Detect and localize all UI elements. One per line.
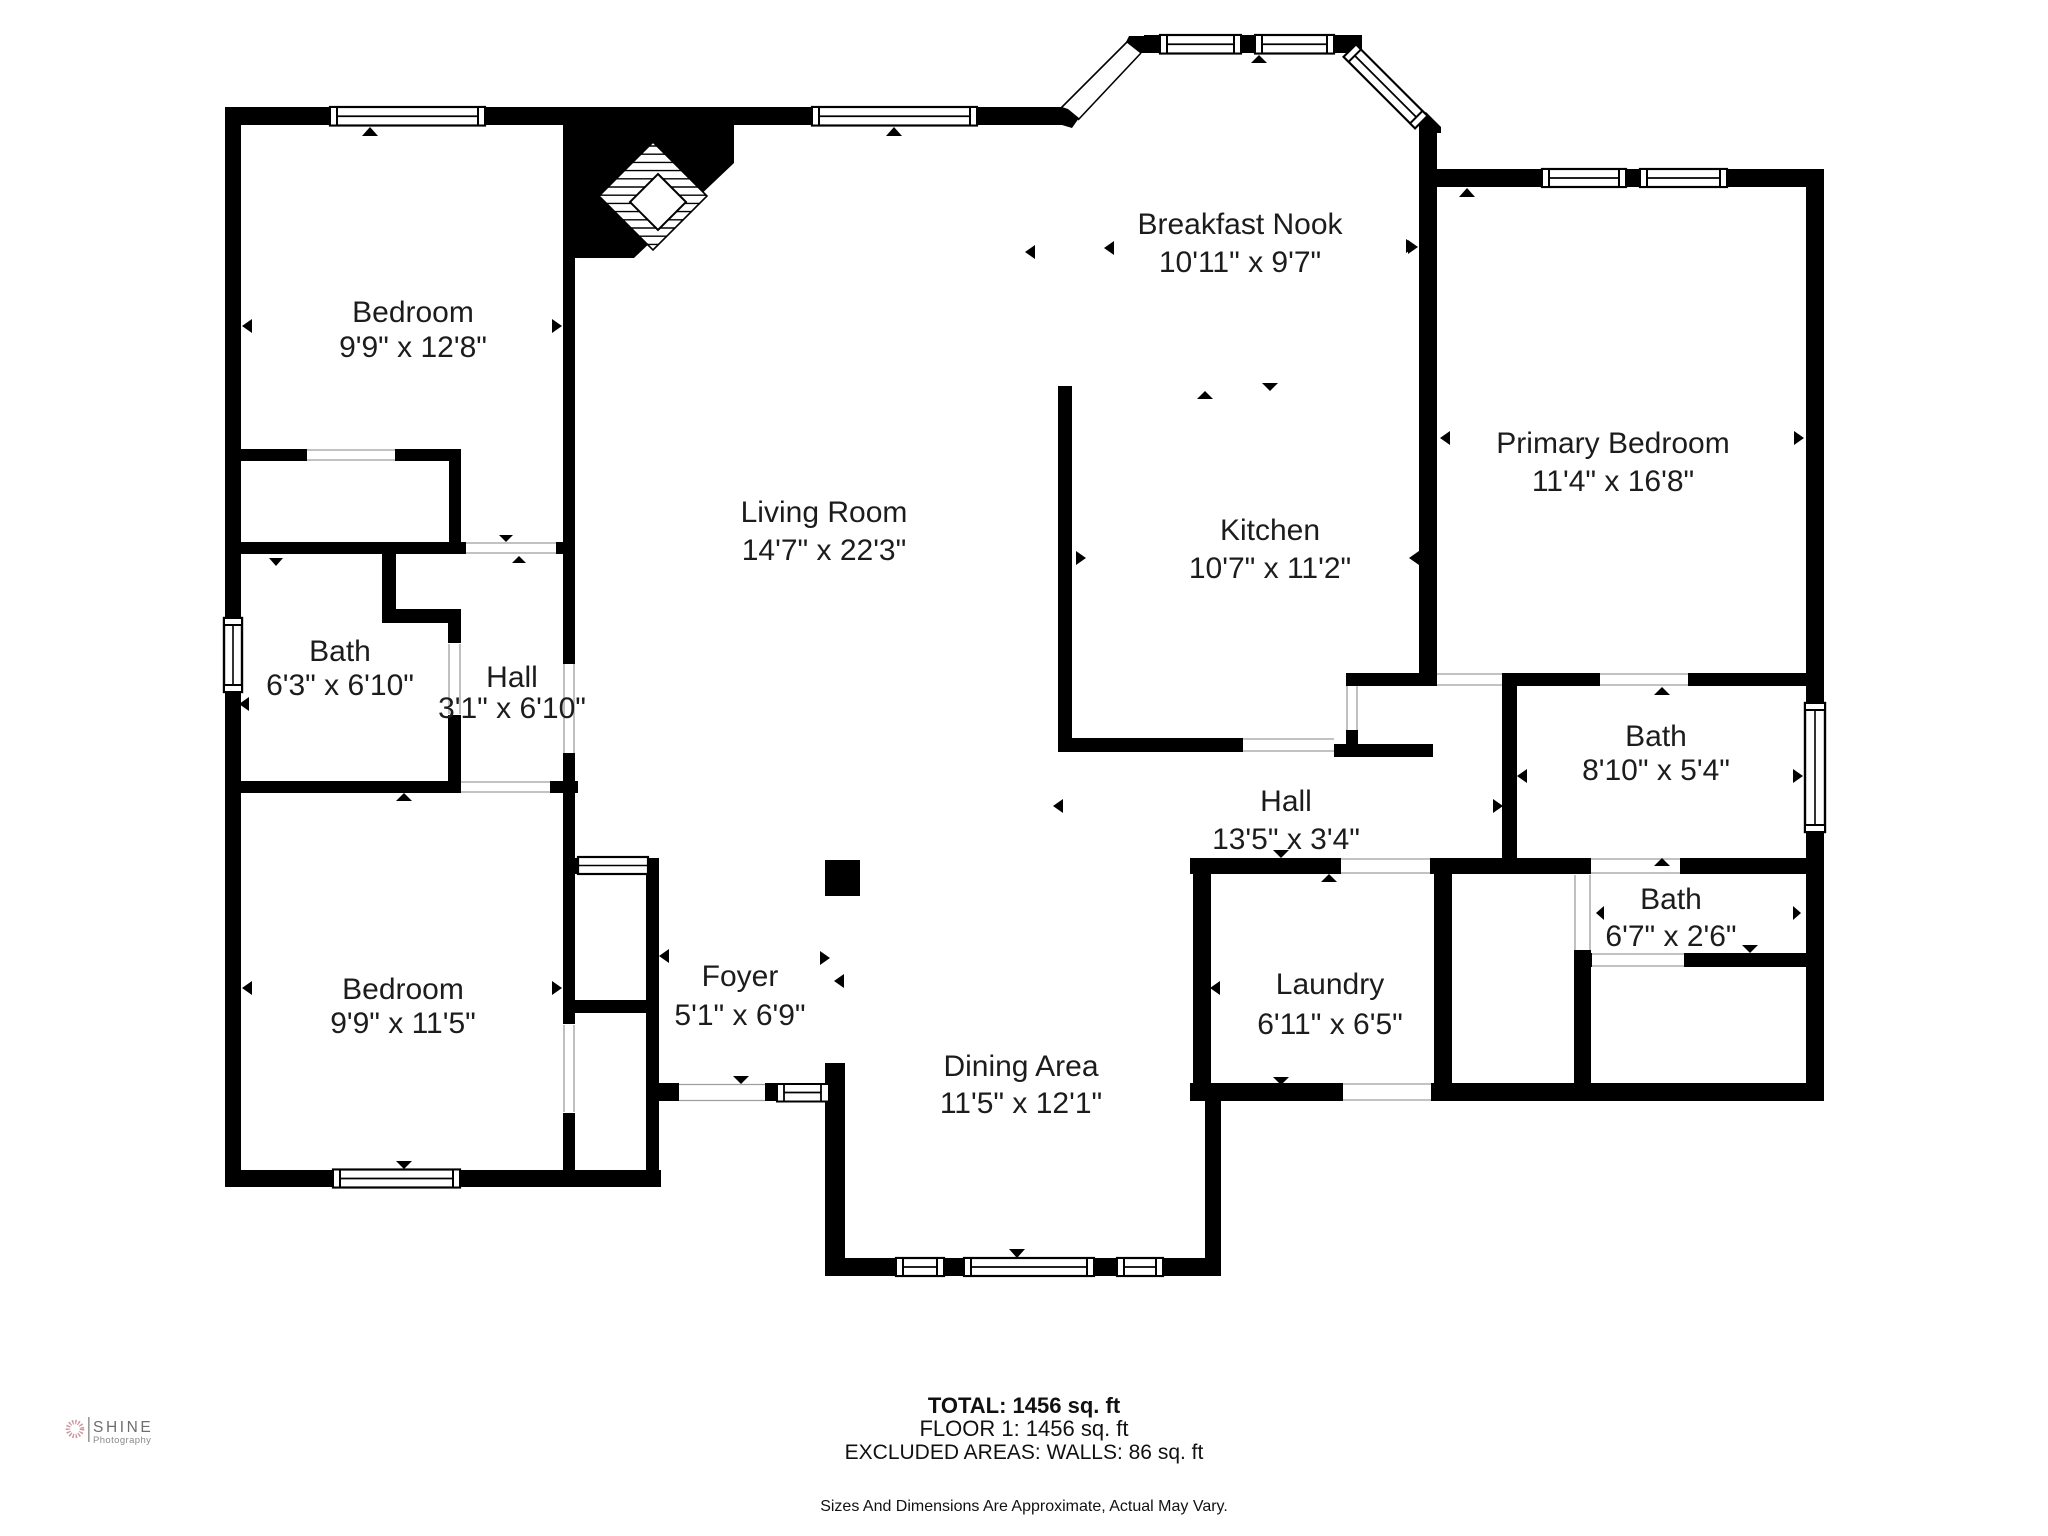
svg-text:TOTAL: 1456 sq. ft: TOTAL: 1456 sq. ft	[928, 1393, 1121, 1418]
svg-text:FLOOR 1: 1456 sq. ft: FLOOR 1: 1456 sq. ft	[919, 1416, 1128, 1441]
svg-text:SHINE: SHINE	[93, 1419, 153, 1436]
svg-text:Bedroom: Bedroom	[342, 973, 464, 1006]
svg-text:11'4" x 16'8": 11'4" x 16'8"	[1532, 465, 1694, 498]
svg-text:Hall: Hall	[486, 661, 538, 694]
svg-text:14'7" x 22'3": 14'7" x 22'3"	[742, 534, 907, 567]
svg-text:6'7" x 2'6": 6'7" x 2'6"	[1605, 920, 1736, 953]
svg-text:Bedroom: Bedroom	[352, 296, 474, 329]
svg-text:9'9" x 12'8": 9'9" x 12'8"	[339, 331, 487, 364]
svg-text:3'1" x 6'10": 3'1" x 6'10"	[438, 692, 586, 725]
svg-text:13'5" x 3'4": 13'5" x 3'4"	[1212, 823, 1360, 856]
svg-text:Foyer: Foyer	[702, 960, 779, 993]
svg-text:Primary Bedroom: Primary Bedroom	[1496, 427, 1729, 460]
svg-text:Laundry: Laundry	[1276, 968, 1384, 1001]
svg-text:9'9" x 11'5": 9'9" x 11'5"	[330, 1007, 476, 1040]
svg-text:EXCLUDED AREAS: WALLS: 86 sq.: EXCLUDED AREAS: WALLS: 86 sq. ft	[845, 1441, 1204, 1464]
svg-text:Bath: Bath	[1625, 720, 1687, 753]
svg-text:8'10" x 5'4": 8'10" x 5'4"	[1582, 754, 1730, 787]
svg-text:Dining Area: Dining Area	[943, 1050, 1098, 1083]
svg-text:6'11" x 6'5": 6'11" x 6'5"	[1257, 1008, 1403, 1041]
svg-text:5'1" x 6'9": 5'1" x 6'9"	[674, 999, 805, 1032]
svg-text:Bath: Bath	[1640, 883, 1702, 916]
svg-text:Hall: Hall	[1260, 785, 1312, 818]
svg-text:6'3" x 6'10": 6'3" x 6'10"	[266, 669, 414, 702]
svg-text:Kitchen: Kitchen	[1220, 514, 1320, 547]
svg-text:Breakfast Nook: Breakfast Nook	[1137, 208, 1343, 241]
svg-text:11'5" x 12'1": 11'5" x 12'1"	[940, 1087, 1102, 1120]
svg-text:Photography: Photography	[93, 1435, 151, 1446]
svg-text:Sizes And Dimensions Are Appro: Sizes And Dimensions Are Approximate, Ac…	[820, 1498, 1228, 1515]
svg-text:10'11" x 9'7": 10'11" x 9'7"	[1159, 246, 1321, 279]
svg-text:10'7" x 11'2": 10'7" x 11'2"	[1189, 552, 1351, 585]
svg-text:Living Room: Living Room	[741, 496, 908, 529]
svg-text:Bath: Bath	[309, 635, 371, 668]
